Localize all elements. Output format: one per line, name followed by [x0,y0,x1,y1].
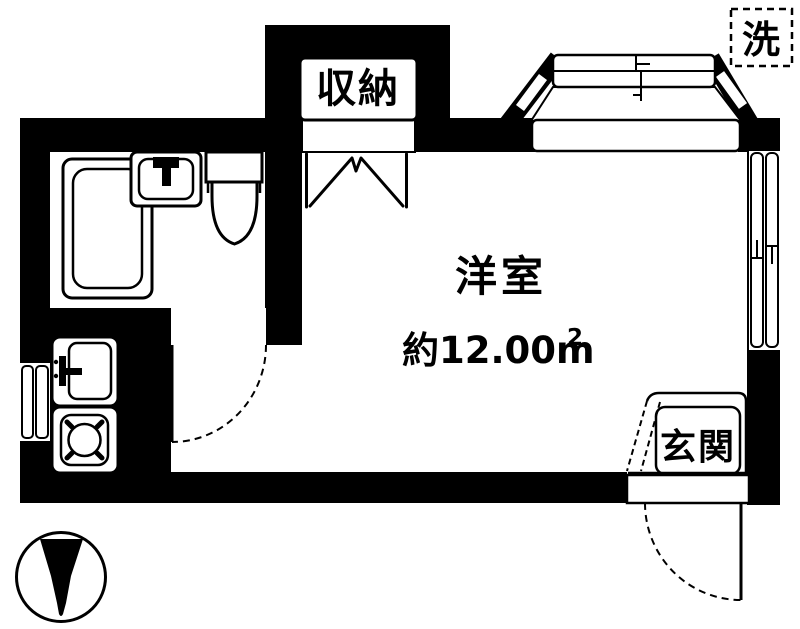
right-window [749,151,781,350]
area-superscript: 2 [567,325,583,351]
entrance-area: 玄関 [627,393,749,600]
toilet-bowl [212,182,257,244]
toilet-tank [206,152,262,182]
kitchen-faucet-icon [66,368,82,375]
bathroom-doorway [171,308,266,345]
entrance-door-arc [645,503,741,600]
bathroom-door [172,345,266,442]
bathroom-door-arc [172,345,266,442]
area-label: 約12.00m [402,329,595,372]
room-label: 洋室 [455,252,547,301]
folding-door [307,154,407,207]
closet-right-wall [415,25,450,152]
top-wall-left [20,118,302,152]
bottom-wall [20,472,627,503]
kitchen [52,337,118,473]
bathroom [63,152,262,298]
kitchen-faucet-icon [59,356,66,386]
bay-sill [532,120,740,151]
left-window-pane [36,366,48,438]
closet-floor [302,119,415,152]
left-window-pane [22,366,33,438]
bay-interior [531,87,741,121]
left-window [20,363,50,441]
entrance-threshold [627,475,749,503]
partition-wall [265,25,302,345]
laundry-label: 洗 [742,18,780,62]
bay-window [503,55,754,151]
north-arrow-icon [17,533,106,622]
floor-plan: 収納 [0,0,800,629]
closet-label: 収納 [316,66,400,112]
entrance-label: 玄関 [660,427,736,468]
